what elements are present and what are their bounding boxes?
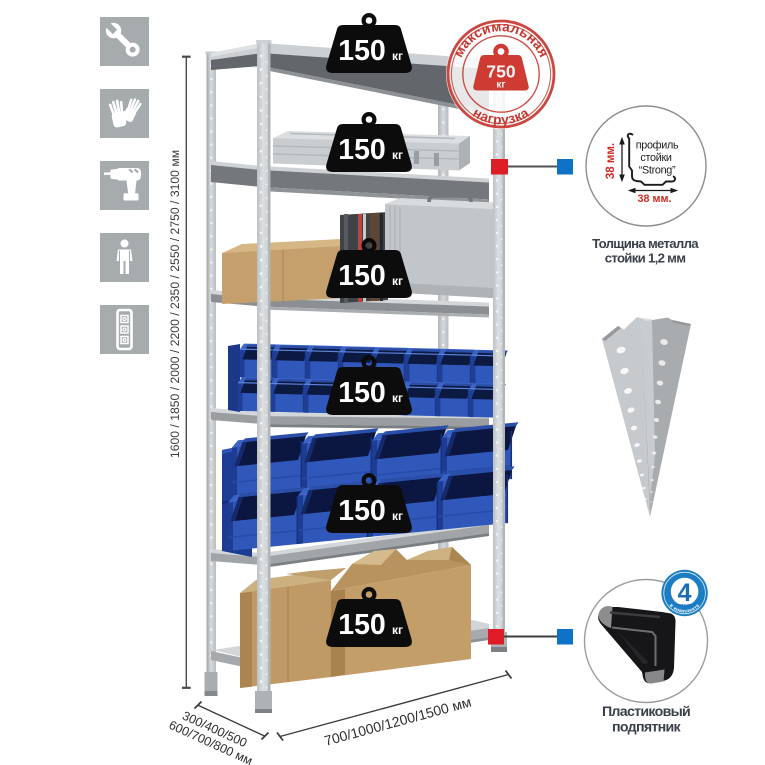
svg-text:стойки: стойки	[640, 152, 671, 164]
svg-text:38 мм.: 38 мм.	[638, 193, 672, 205]
svg-text:38 мм.: 38 мм.	[605, 143, 617, 179]
svg-text:150: 150	[338, 134, 386, 166]
svg-text:кг: кг	[392, 623, 403, 637]
svg-text:750: 750	[486, 62, 515, 82]
svg-text:кг: кг	[392, 49, 403, 63]
svg-text:1600 / 1850 / 2000 / 2200 / 23: 1600 / 1850 / 2000 / 2200 / 2350 / 2550 …	[168, 150, 182, 458]
svg-text:кг: кг	[392, 391, 403, 405]
svg-text:кг: кг	[392, 509, 403, 523]
svg-text:подпятник: подпятник	[612, 720, 682, 736]
svg-text:стойки 1,2 мм: стойки 1,2 мм	[605, 251, 686, 266]
svg-text:профиль: профиль	[636, 140, 679, 152]
svg-text:кг: кг	[392, 274, 403, 288]
svg-text:150: 150	[338, 495, 386, 527]
svg-text:150: 150	[338, 35, 386, 67]
svg-text:штуки: штуки	[677, 604, 692, 609]
svg-text:150: 150	[338, 377, 386, 409]
svg-text:Пластиковый: Пластиковый	[602, 704, 690, 720]
svg-text:кг: кг	[496, 80, 505, 91]
svg-text:150: 150	[338, 260, 386, 292]
svg-text:150: 150	[338, 609, 386, 641]
svg-text:кг: кг	[392, 148, 403, 162]
svg-text:“Strong”: “Strong”	[639, 165, 676, 177]
svg-text:Толщина металла: Толщина металла	[592, 236, 699, 251]
